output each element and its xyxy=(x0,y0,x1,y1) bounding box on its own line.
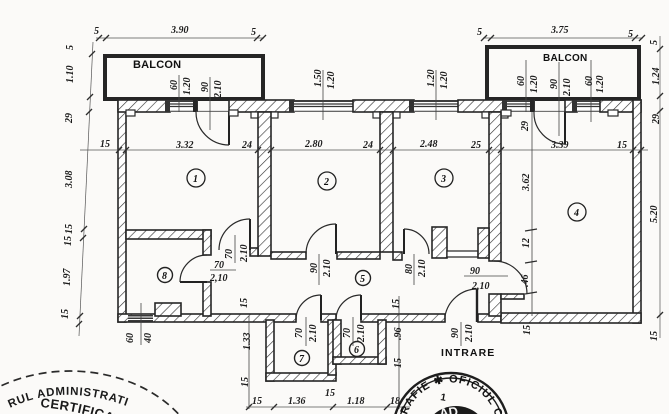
svg-text:7: 7 xyxy=(299,354,305,365)
svg-text:3.39: 3.39 xyxy=(550,140,569,151)
svg-text:1: 1 xyxy=(439,392,447,404)
svg-text:24: 24 xyxy=(362,140,373,151)
svg-text:90: 90 xyxy=(470,266,480,277)
svg-text:1.97: 1.97 xyxy=(62,268,73,287)
svg-text:90: 90 xyxy=(450,328,461,338)
svg-text:90: 90 xyxy=(200,82,211,92)
svg-text:3.32: 3.32 xyxy=(175,140,194,151)
svg-text:25: 25 xyxy=(470,140,481,151)
svg-text:2.10: 2.10 xyxy=(308,325,319,344)
svg-text:5.20: 5.20 xyxy=(649,206,660,224)
svg-text:5: 5 xyxy=(360,274,365,285)
svg-text:15: 15 xyxy=(391,299,402,309)
svg-text:70: 70 xyxy=(342,328,353,338)
svg-text:.96: .96 xyxy=(393,328,404,341)
svg-text:60: 60 xyxy=(584,76,595,86)
svg-text:1.18: 1.18 xyxy=(347,396,365,407)
svg-text:5: 5 xyxy=(628,29,633,40)
svg-text:60: 60 xyxy=(169,80,180,90)
svg-text:70: 70 xyxy=(224,249,235,259)
svg-text:29: 29 xyxy=(64,113,75,124)
svg-text:4: 4 xyxy=(573,208,579,219)
svg-text:5: 5 xyxy=(65,45,76,50)
svg-text:15: 15 xyxy=(239,298,250,308)
svg-text:40: 40 xyxy=(143,333,154,344)
svg-text:2.10: 2.10 xyxy=(239,245,250,264)
svg-text:60: 60 xyxy=(125,333,136,343)
svg-text:15: 15 xyxy=(252,396,262,407)
svg-text:3.08: 3.08 xyxy=(64,171,75,190)
svg-text:15: 15 xyxy=(325,388,335,399)
svg-text:6: 6 xyxy=(354,345,359,356)
svg-text:1.20: 1.20 xyxy=(326,72,337,90)
svg-text:5: 5 xyxy=(94,26,99,37)
svg-text:2.10: 2.10 xyxy=(356,325,367,344)
svg-text:2.10: 2.10 xyxy=(562,79,573,98)
svg-text:15: 15 xyxy=(522,325,533,335)
svg-text:80: 80 xyxy=(404,264,415,274)
svg-text:5: 5 xyxy=(251,27,256,38)
svg-text:60: 60 xyxy=(516,76,527,86)
svg-text:3: 3 xyxy=(440,174,446,185)
svg-text:2,10: 2,10 xyxy=(209,273,228,284)
svg-text:2.10: 2.10 xyxy=(322,260,333,279)
svg-text:70: 70 xyxy=(294,328,305,338)
svg-text:INTRARE: INTRARE xyxy=(441,347,495,359)
svg-text:1.36: 1.36 xyxy=(288,396,306,407)
svg-text:2: 2 xyxy=(323,177,329,188)
svg-text:15: 15 xyxy=(64,224,75,234)
svg-text:2.10: 2.10 xyxy=(417,260,428,279)
svg-text:90: 90 xyxy=(549,79,560,89)
svg-text:8: 8 xyxy=(162,271,167,282)
svg-text:15: 15 xyxy=(393,358,404,368)
svg-text:.46: .46 xyxy=(520,275,531,288)
svg-text:15: 15 xyxy=(100,139,110,150)
svg-text:12: 12 xyxy=(521,238,532,248)
svg-text:1.33: 1.33 xyxy=(242,333,253,351)
svg-text:15: 15 xyxy=(63,236,74,246)
svg-text:1.20: 1.20 xyxy=(529,76,540,94)
svg-text:2.48: 2.48 xyxy=(419,139,438,150)
svg-text:2.80: 2.80 xyxy=(304,139,323,150)
svg-text:1.24: 1.24 xyxy=(651,68,662,86)
svg-text:15: 15 xyxy=(617,140,627,151)
svg-text:5: 5 xyxy=(477,27,482,38)
svg-text:15: 15 xyxy=(240,377,251,387)
svg-text:1.20: 1.20 xyxy=(595,76,606,94)
svg-text:1.20: 1.20 xyxy=(182,78,193,96)
svg-text:24: 24 xyxy=(241,140,252,151)
svg-text:2.10: 2.10 xyxy=(464,325,475,344)
svg-text:3.90: 3.90 xyxy=(170,25,189,36)
svg-text:2.10: 2.10 xyxy=(213,81,224,100)
svg-text:1: 1 xyxy=(193,174,198,185)
svg-text:1.50: 1.50 xyxy=(313,70,324,88)
svg-text:15: 15 xyxy=(60,309,71,319)
svg-text:3.75: 3.75 xyxy=(550,25,569,36)
svg-text:1.10: 1.10 xyxy=(65,66,76,84)
svg-text:90: 90 xyxy=(309,263,320,273)
svg-text:3.62: 3.62 xyxy=(521,174,532,193)
svg-text:70: 70 xyxy=(214,260,224,271)
svg-text:BALCON: BALCON xyxy=(133,59,181,71)
svg-text:29: 29 xyxy=(651,114,662,125)
svg-text:1.20: 1.20 xyxy=(439,72,450,90)
svg-text:29: 29 xyxy=(520,121,531,132)
svg-text:15: 15 xyxy=(649,331,660,341)
svg-text:1.20: 1.20 xyxy=(426,70,437,88)
svg-text:2,10: 2,10 xyxy=(471,281,490,292)
svg-text:5: 5 xyxy=(649,40,660,45)
svg-text:BALCON: BALCON xyxy=(543,53,588,64)
svg-text:AD: AD xyxy=(438,404,459,414)
